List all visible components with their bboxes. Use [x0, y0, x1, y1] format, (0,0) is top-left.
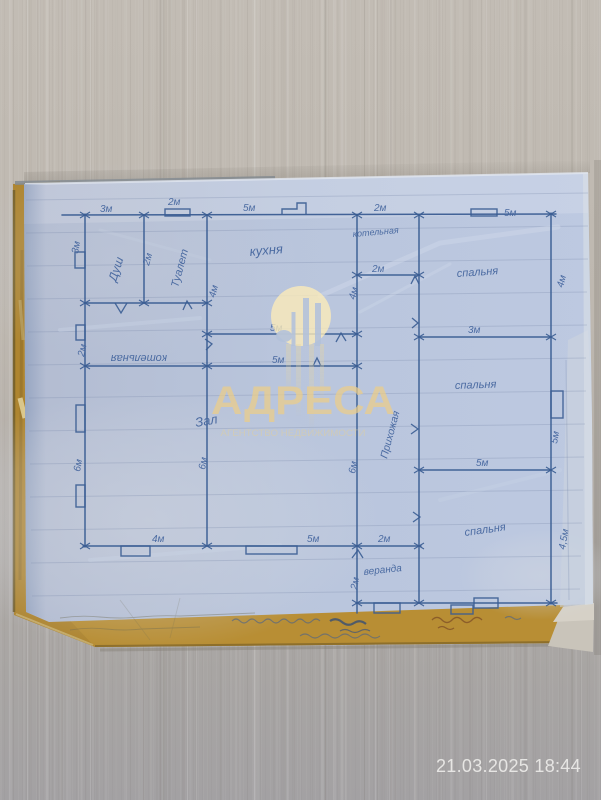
- svg-text:2м: 2м: [349, 576, 362, 591]
- svg-text:21.03.2025 18:44: 21.03.2025 18:44: [436, 756, 581, 776]
- svg-text:3м: 3м: [100, 204, 113, 215]
- svg-text:5м: 5м: [476, 458, 489, 469]
- svg-text:5м: 5м: [549, 430, 562, 444]
- svg-text:кухня: кухня: [249, 241, 283, 259]
- svg-text:4м: 4м: [152, 534, 165, 545]
- svg-text:АДРЕСА: АДРЕСА: [211, 379, 395, 423]
- svg-text:6м: 6м: [347, 460, 360, 474]
- svg-text:2м: 2м: [371, 264, 385, 275]
- svg-text:2м: 2м: [167, 197, 181, 208]
- svg-text:3м: 3м: [468, 325, 481, 336]
- svg-text:5м: 5м: [504, 208, 517, 219]
- svg-text:2м: 2м: [377, 534, 391, 545]
- svg-text:6м: 6м: [197, 456, 210, 470]
- svg-text:5м: 5м: [272, 355, 285, 366]
- svg-text:спальня: спальня: [455, 379, 497, 392]
- svg-text:котельная: котельная: [111, 352, 167, 364]
- svg-text:6м: 6м: [72, 458, 85, 472]
- svg-text:3м: 3м: [70, 240, 83, 254]
- svg-text:5м: 5м: [307, 534, 320, 545]
- svg-text:5м: 5м: [243, 203, 256, 214]
- svg-text:АГЕНТСТВО НЕДВИЖИМОСТИ: АГЕНТСТВО НЕДВИЖИМОСТИ: [221, 428, 366, 439]
- svg-text:2м: 2м: [373, 203, 387, 214]
